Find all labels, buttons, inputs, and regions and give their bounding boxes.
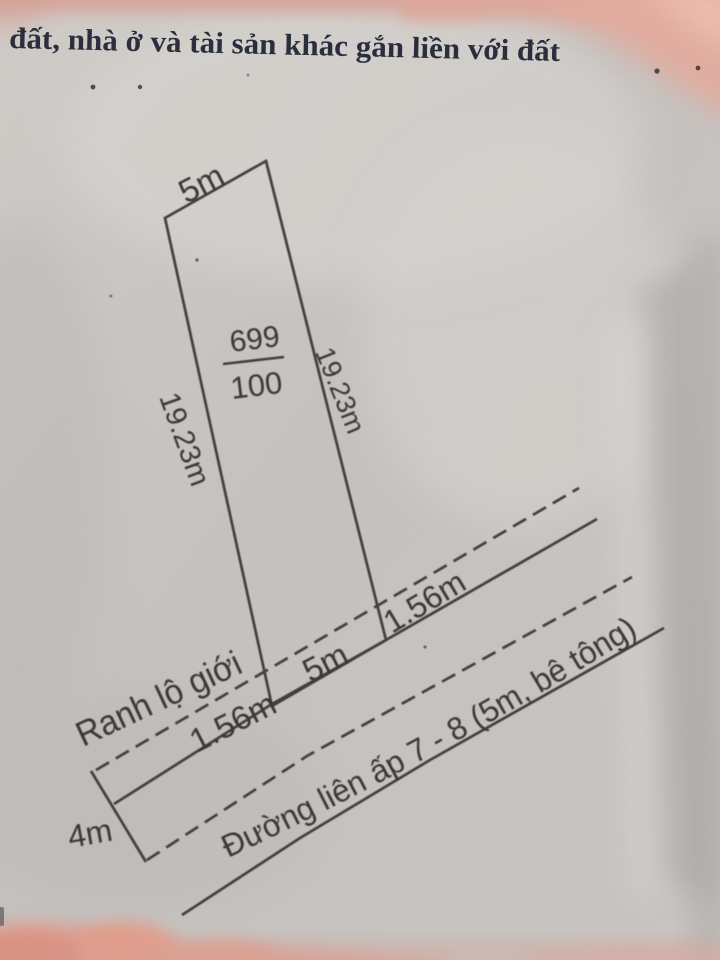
svg-text:4m: 4m	[65, 812, 115, 855]
svg-text:699: 699	[228, 320, 282, 359]
svg-text:100: 100	[229, 365, 285, 406]
